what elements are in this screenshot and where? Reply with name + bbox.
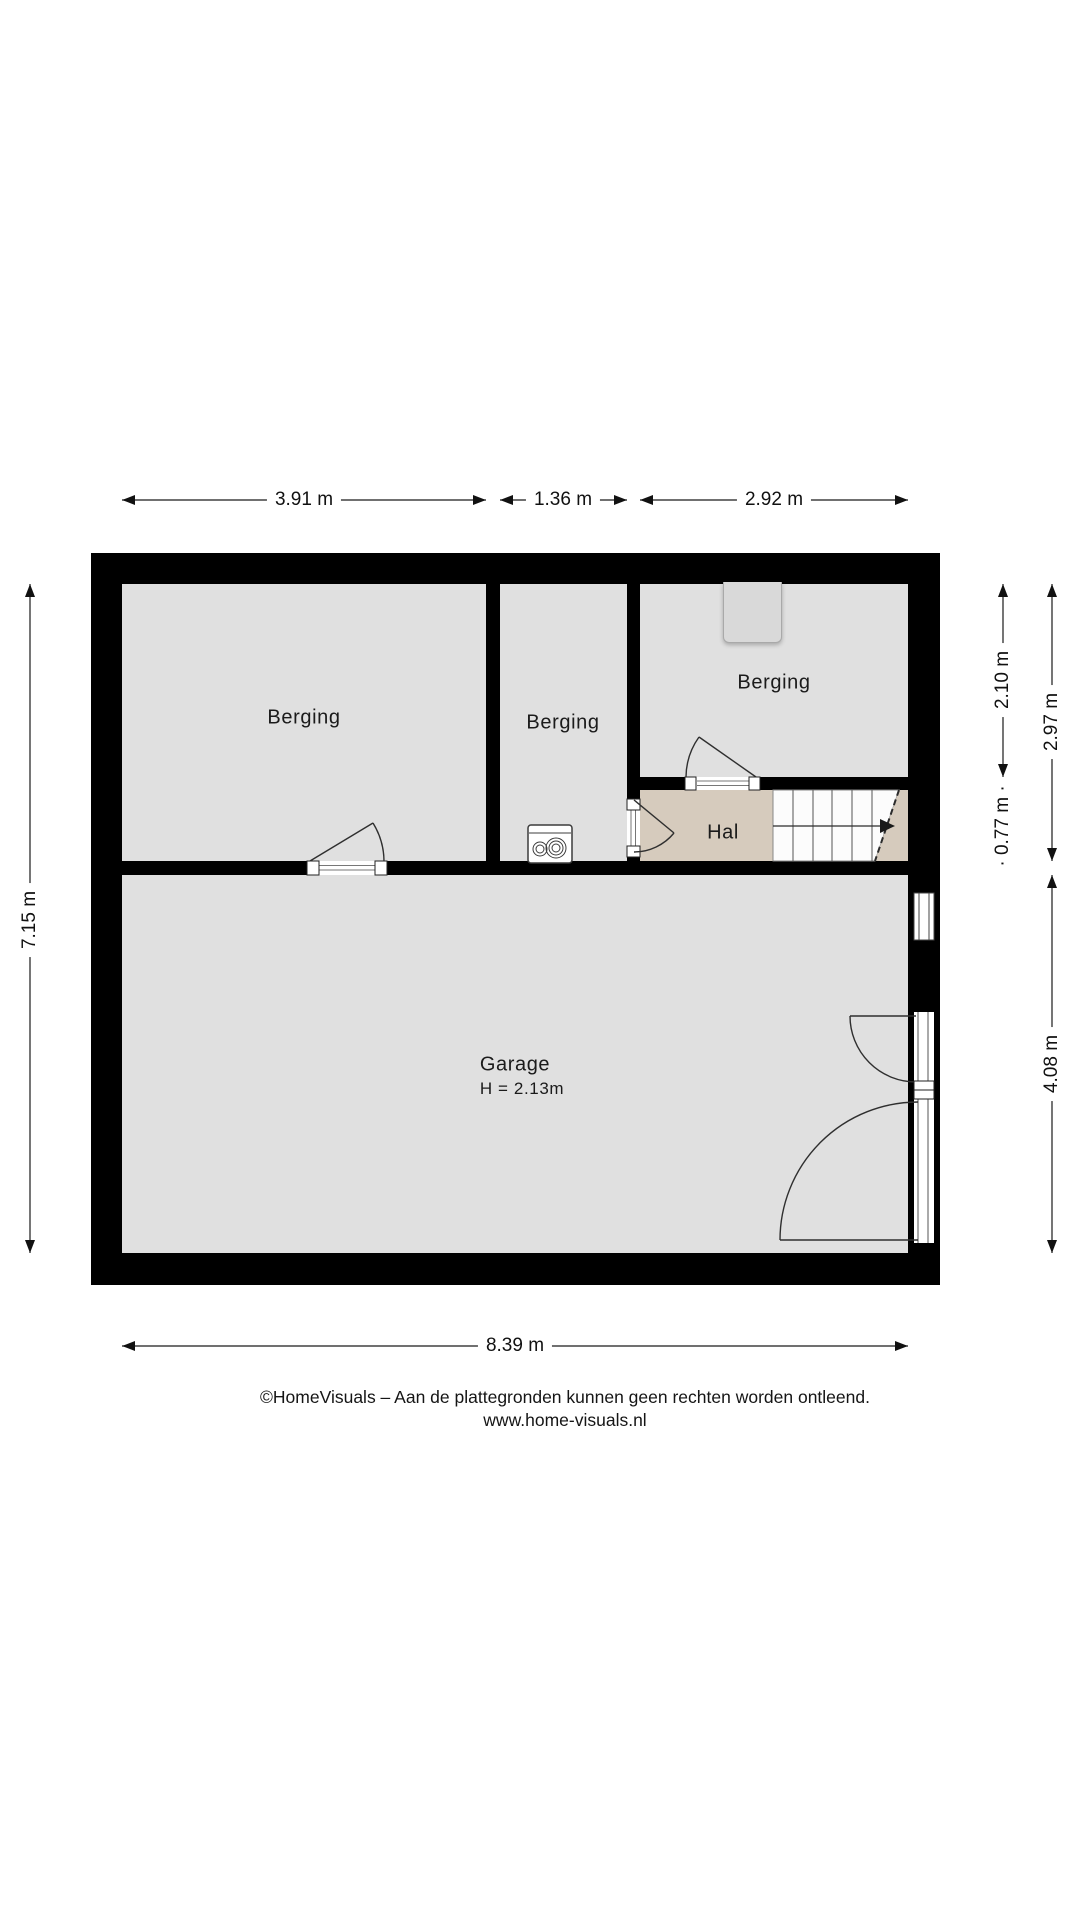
garage-door — [780, 1012, 934, 1243]
footer-url: www.home-visuals.nl — [50, 1409, 1080, 1432]
label-berging-top-right: Berging — [737, 672, 810, 695]
label-berging-middle: Berging — [526, 712, 599, 735]
dim-top-left: 3.91 m — [267, 489, 341, 511]
dim-bottom-total: 8.39 m — [478, 1335, 552, 1357]
label-berging-left: Berging — [267, 707, 340, 730]
plan-symbols-overlay — [0, 0, 1080, 1920]
label-garage-height: H = 2.13m — [480, 1079, 564, 1099]
footer-disclaimer: ©HomeVisuals – Aan de plattegronden kunn… — [50, 1386, 1080, 1409]
dimension-lines — [30, 500, 1052, 1346]
dim-top-right: 2.92 m — [737, 489, 811, 511]
door-swing-arc — [373, 823, 384, 861]
dim-right-hal: · 0.77 m · — [992, 777, 1014, 874]
dim-top-middle: 1.36 m — [526, 489, 600, 511]
door-berging-middle — [627, 799, 674, 857]
footer: ©HomeVisuals – Aan de plattegronden kunn… — [50, 1386, 1080, 1432]
dim-right-berging-hal: 2.97 m — [1041, 685, 1063, 759]
label-garage: Garage — [480, 1054, 550, 1077]
dim-right-garage: 4.08 m — [1041, 1027, 1063, 1101]
door-berging-left — [307, 823, 387, 875]
door-swing-arc — [686, 737, 699, 777]
door-swing-arc — [780, 1102, 918, 1240]
door-swing-arc — [850, 1016, 916, 1082]
water-heater-icon — [528, 825, 572, 863]
floorplan-page: Berging Berging Berging Hal Garage H = 2… — [0, 0, 1080, 1920]
door-berging-top-right — [685, 737, 760, 790]
dim-left-total: 7.15 m — [19, 883, 41, 957]
staircase — [773, 790, 908, 861]
dim-right-berging: 2.10 m — [992, 643, 1014, 717]
label-hal: Hal — [707, 822, 739, 845]
door-leaf — [699, 737, 756, 777]
door-leaf — [310, 823, 373, 861]
window — [914, 893, 934, 940]
